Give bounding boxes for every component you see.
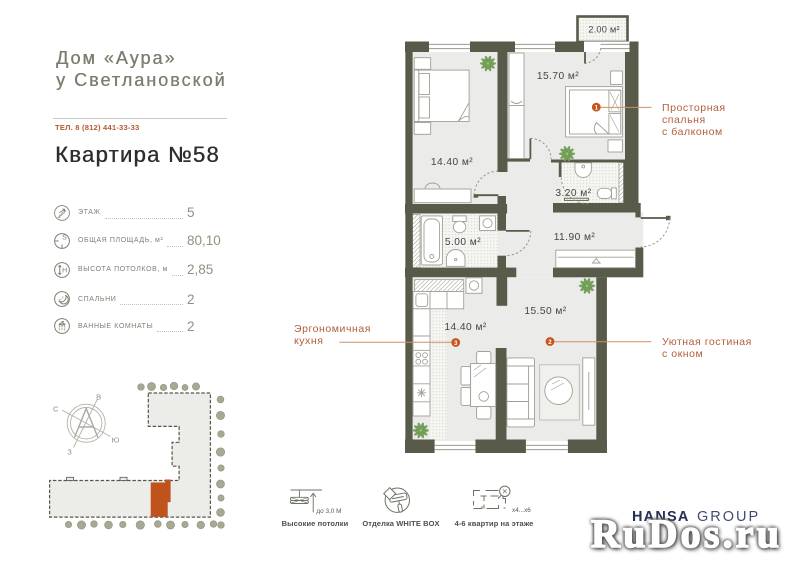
svg-text:В: В — [96, 393, 101, 402]
svg-text:11.90 м²: 11.90 м² — [554, 232, 596, 243]
svg-text:Ю: Ю — [112, 436, 120, 445]
svg-text:5.00 м²: 5.00 м² — [445, 237, 481, 248]
svg-text:З: З — [67, 448, 72, 457]
svg-text:2.00 м²: 2.00 м² — [588, 25, 620, 35]
svg-text:С: С — [53, 405, 59, 414]
svg-text:3.20 м²: 3.20 м² — [555, 188, 591, 199]
svg-text:14.40 м²: 14.40 м² — [431, 157, 473, 168]
svg-text:3: 3 — [454, 340, 458, 347]
svg-text:15.50 м²: 15.50 м² — [524, 306, 566, 317]
svg-text:х4...х6: х4...х6 — [512, 507, 531, 514]
svg-text:до 3,0 М: до 3,0 М — [316, 508, 341, 515]
svg-text:15.70 м²: 15.70 м² — [537, 71, 579, 82]
svg-text:2: 2 — [548, 339, 552, 346]
svg-text:1: 1 — [595, 104, 599, 111]
svg-text:14.40 м²: 14.40 м² — [444, 322, 486, 333]
